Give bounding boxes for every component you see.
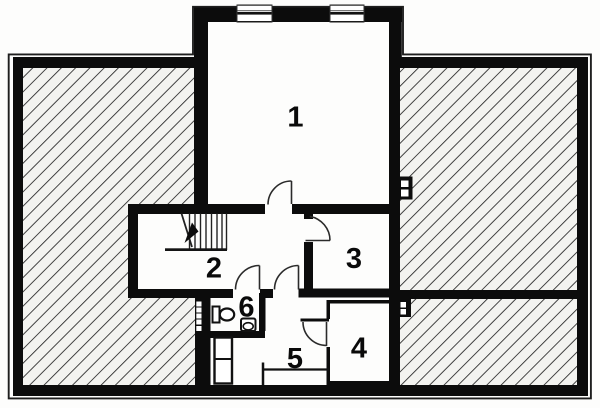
svg-text:4: 4 bbox=[351, 333, 367, 365]
svg-text:2: 2 bbox=[206, 253, 222, 285]
svg-text:5: 5 bbox=[287, 343, 303, 375]
svg-text:3: 3 bbox=[346, 243, 362, 275]
svg-text:6: 6 bbox=[238, 292, 254, 324]
svg-text:1: 1 bbox=[287, 102, 303, 134]
